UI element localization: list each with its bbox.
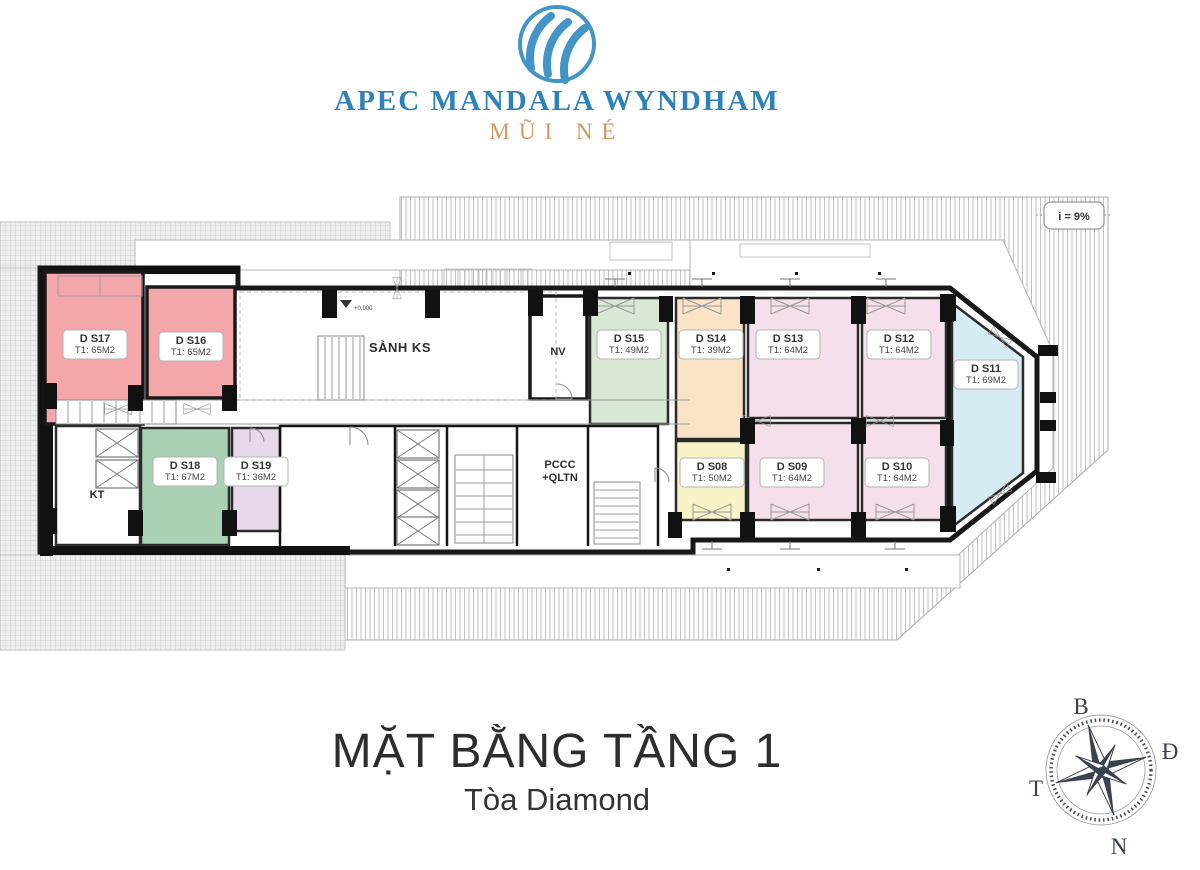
svg-text:T1: 50M2: T1: 50M2 <box>692 473 732 484</box>
compass-star <box>1043 712 1159 828</box>
brand-location: MŨI NÉ <box>0 119 1114 145</box>
svg-text:T1: 36M2: T1: 36M2 <box>236 472 276 483</box>
elevator-icon <box>96 460 138 488</box>
svg-text:D S12: D S12 <box>884 333 915 345</box>
compass-east-label: Đ <box>1162 739 1179 764</box>
technical-room-label: KT <box>90 489 105 501</box>
room-label-ds15: D S15T1: 49M2 <box>597 330 661 359</box>
compass-south-label: N <box>1111 834 1128 859</box>
svg-text:D S14: D S14 <box>696 333 727 345</box>
elevator-icon <box>397 430 439 458</box>
compass-north-label: B <box>1073 694 1088 719</box>
lobby-label: SẢNH KS <box>369 340 431 355</box>
room-label-ds11: D S11T1: 69M2 <box>954 360 1018 389</box>
compass-rose: B Đ N T <box>1018 686 1188 864</box>
room-label-ds17: D S17T1: 65M2 <box>63 330 127 359</box>
svg-text:T1: 67M2: T1: 67M2 <box>165 472 205 483</box>
compass-west-label: T <box>1029 776 1043 801</box>
room-label-ds14: D S14T1: 39M2 <box>679 330 743 359</box>
fire-room-label-1: PCCC <box>544 459 575 471</box>
room-label-ds19: D S19T1: 36M2 <box>224 457 288 486</box>
svg-text:T1: 65M2: T1: 65M2 <box>75 345 115 356</box>
brand-name: APEC MANDALA WYNDHAM <box>0 86 1114 116</box>
svg-text:D S13: D S13 <box>773 333 804 345</box>
svg-text:T1: 64M2: T1: 64M2 <box>879 345 919 356</box>
svg-text:T1: 39M2: T1: 39M2 <box>691 345 731 356</box>
brand-header: APEC MANDALA WYNDHAM MŨI NÉ <box>0 0 1114 145</box>
svg-text:T1: 64M2: T1: 64M2 <box>877 473 917 484</box>
page-title: MẶT BẰNG TẦNG 1 <box>0 724 1114 779</box>
room-label-ds10: D S10T1: 64M2 <box>865 458 929 487</box>
slope-badge: i = 9% <box>1036 202 1112 229</box>
svg-text:D S15: D S15 <box>614 333 645 345</box>
svg-text:D S18: D S18 <box>170 460 201 472</box>
toilet-stalls <box>455 455 513 543</box>
room-label-ds08: D S08T1: 50M2 <box>680 458 744 487</box>
room-ds15 <box>590 298 668 424</box>
svg-text:D S10: D S10 <box>882 461 913 473</box>
page-subtitle: Tòa Diamond <box>0 782 1114 818</box>
room-label-ds18: D S18T1: 67M2 <box>153 457 217 486</box>
floor-plan-page: APEC MANDALA WYNDHAM MŨI NÉ <box>0 0 1200 870</box>
elevator-icon <box>397 517 439 545</box>
svg-text:D S19: D S19 <box>241 460 272 472</box>
room-label-ds09: D S09T1: 64M2 <box>760 458 824 487</box>
paving-hatch-bottomleft <box>0 555 345 650</box>
svg-text:T1: 64M2: T1: 64M2 <box>772 473 812 484</box>
floor-plan-drawing: +0.000 SẢNH KS NV KT PCCC +QLTN D S17T1:… <box>0 190 1200 660</box>
svg-text:T1: 49M2: T1: 49M2 <box>609 345 649 356</box>
svg-text:T1: 69M2: T1: 69M2 <box>966 375 1006 386</box>
svg-text:D S17: D S17 <box>80 333 111 345</box>
svg-text:D S09: D S09 <box>777 461 808 473</box>
slope-label: i = 9% <box>1058 211 1090 223</box>
fire-room-label-2: +QLTN <box>542 472 578 484</box>
svg-text:T1: 64M2: T1: 64M2 <box>768 345 808 356</box>
svg-text:D S11: D S11 <box>971 363 1001 375</box>
room-ds14 <box>676 298 744 439</box>
elevator-icon <box>397 460 439 488</box>
room-label-ds16: D S16T1: 65M2 <box>159 332 223 361</box>
room-label-ds13: D S13T1: 64M2 <box>756 330 820 359</box>
svg-text:D S08: D S08 <box>697 461 728 473</box>
svg-text:D S16: D S16 <box>176 335 207 347</box>
room-label-ds12: D S12T1: 64M2 <box>867 330 931 359</box>
svg-text:T1: 65M2: T1: 65M2 <box>171 347 211 358</box>
staff-room-label: NV <box>550 346 566 358</box>
elevator-icon <box>96 429 138 457</box>
elevator-icon <box>397 490 439 518</box>
level-marker-text: +0.000 <box>354 306 373 312</box>
wave-logo-icon <box>497 2 617 86</box>
